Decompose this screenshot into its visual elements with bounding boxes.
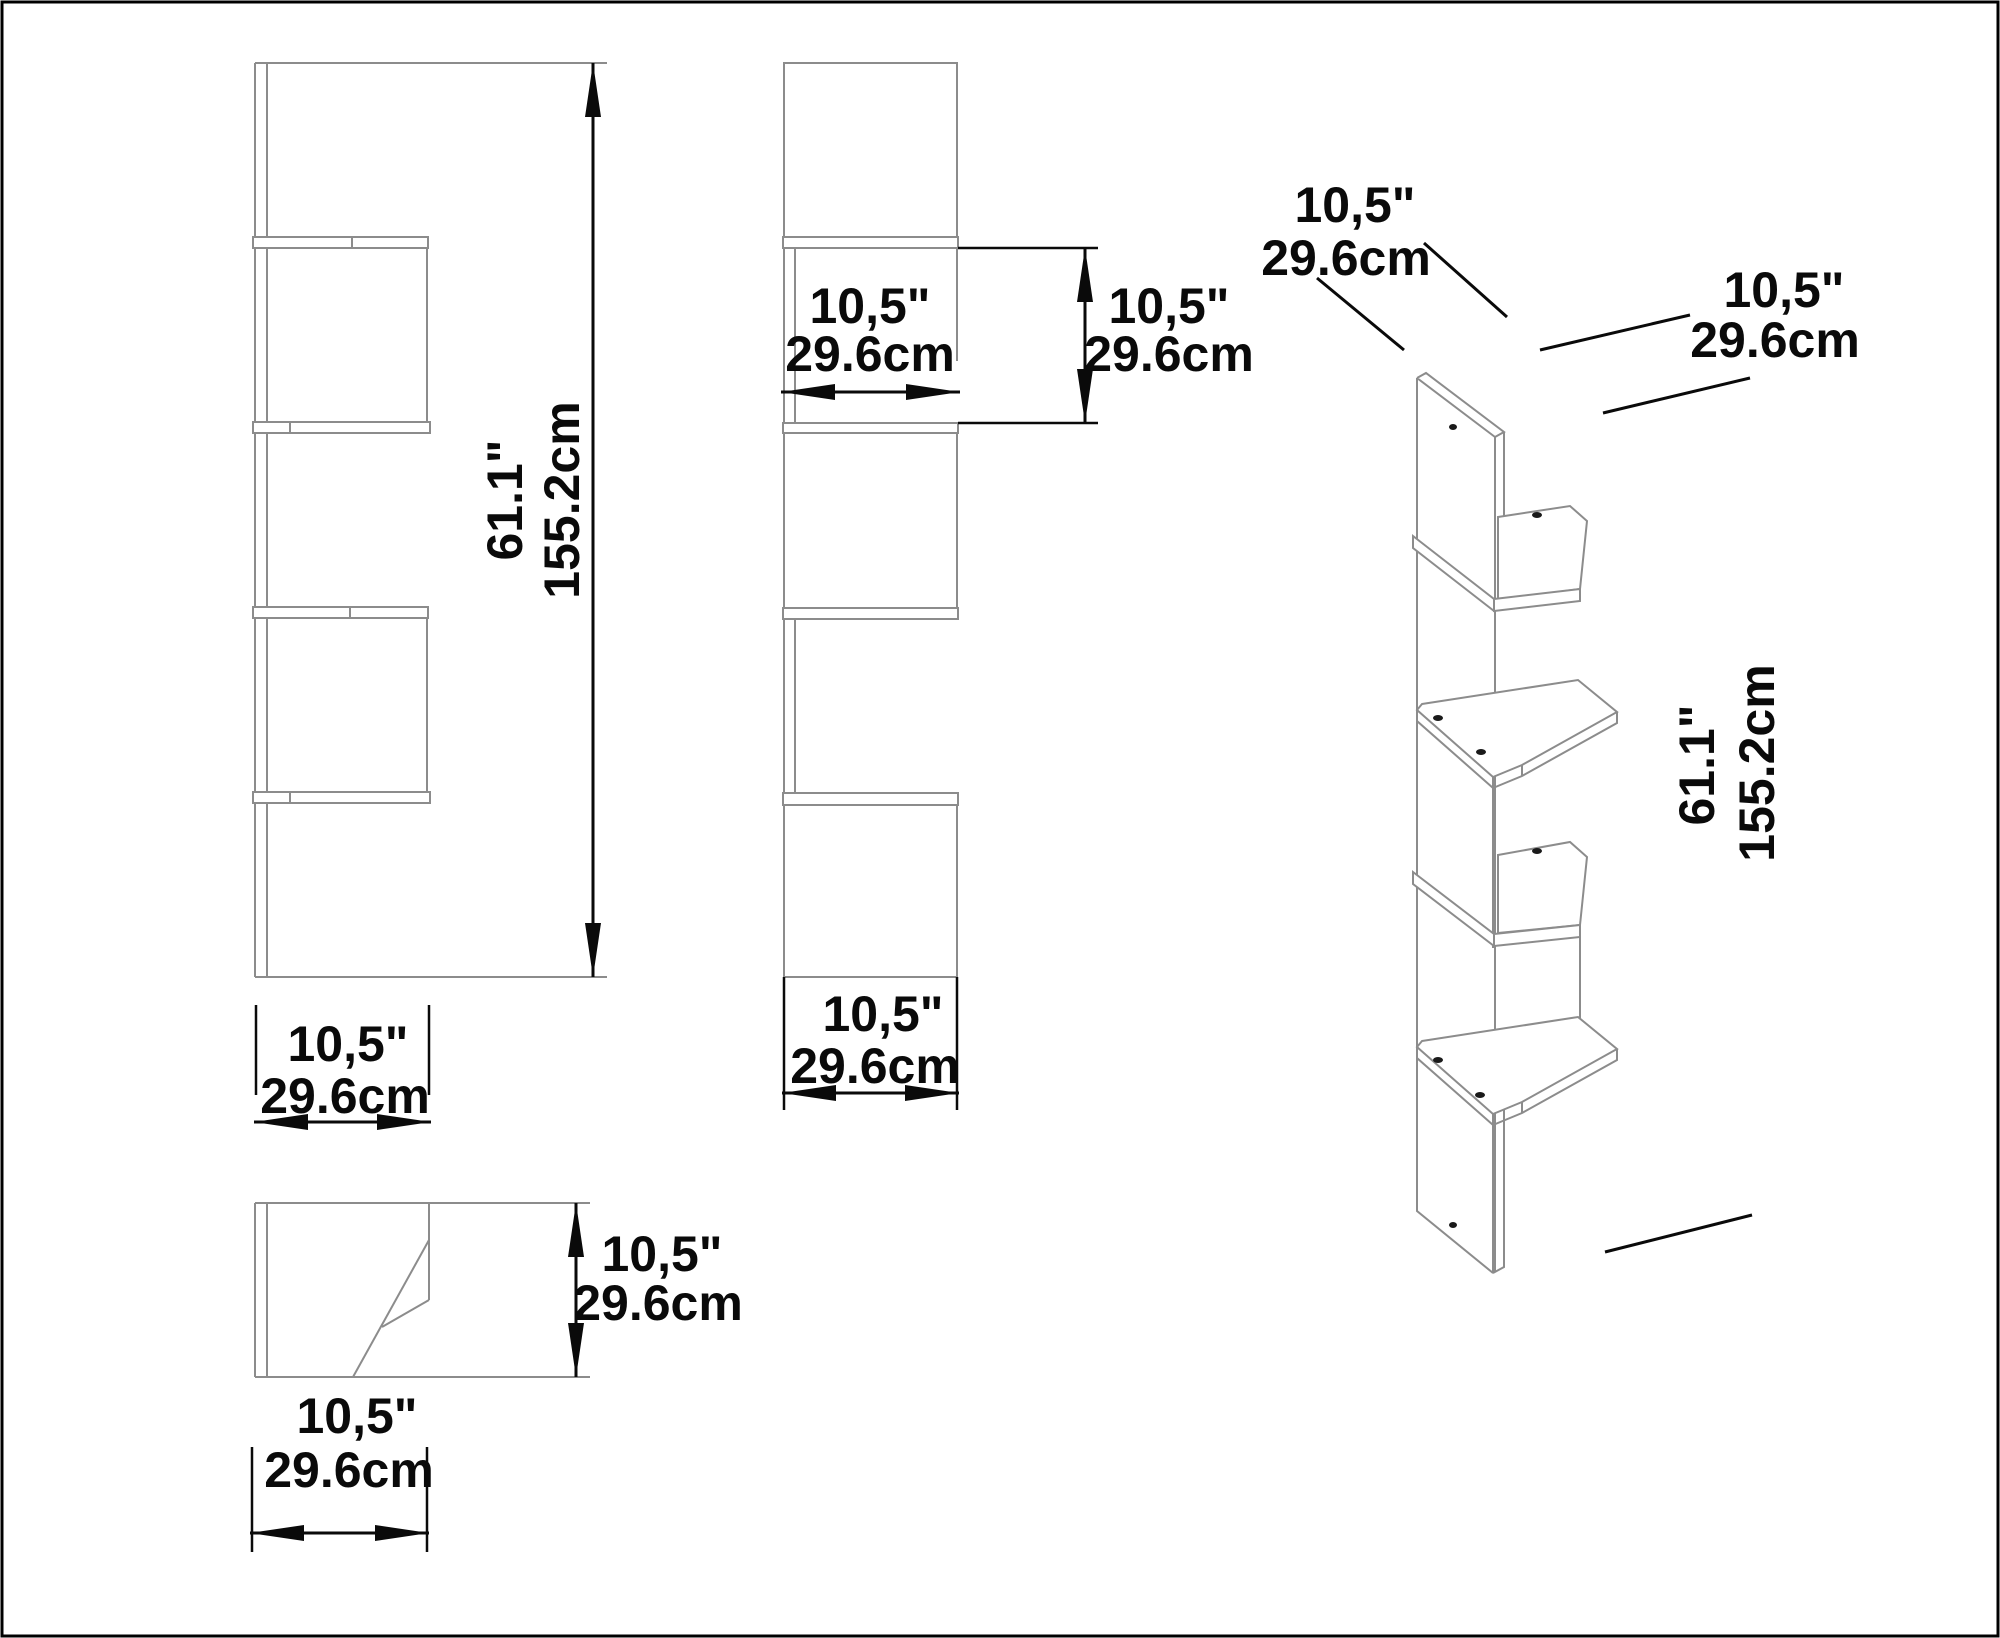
persp-lower-zig-panel xyxy=(1498,842,1587,933)
side-band-2 xyxy=(783,423,958,433)
persp-side-width-in: 10,5" xyxy=(1723,262,1844,318)
side-band-3 xyxy=(783,608,958,619)
screw-hole-icon xyxy=(1532,512,1542,518)
side-box-1 xyxy=(784,63,957,237)
screw-hole-icon xyxy=(1449,424,1457,430)
drawing-sheet: 61.1" 155.2cm 10,5" 29.6cm 10,5" xyxy=(0,0,2000,1638)
persp-back-width-in: 10,5" xyxy=(1294,177,1415,233)
front-height-label-in: 61.1" xyxy=(477,439,533,560)
shelf-dimension-diagram: 61.1" 155.2cm 10,5" 29.6cm 10,5" xyxy=(0,0,2000,1638)
side-width-label-in: 10,5" xyxy=(822,986,943,1042)
top-depth-label-cm: 29.6cm xyxy=(573,1275,743,1331)
top-width-label-in: 10,5" xyxy=(296,1388,417,1444)
screw-hole-icon xyxy=(1433,1057,1443,1063)
front-width-label-cm: 29.6cm xyxy=(260,1068,430,1124)
persp-side-width-cm: 29.6cm xyxy=(1690,312,1860,368)
front-shelf-band-1 xyxy=(253,237,428,248)
screw-hole-icon xyxy=(1475,1092,1485,1098)
side-width-label-cm: 29.6cm xyxy=(790,1038,960,1094)
screw-hole-icon xyxy=(1532,848,1542,854)
persp-height-cm: 155.2cm xyxy=(1729,664,1785,861)
front-shelf-band-4 xyxy=(253,792,430,803)
persp-height-in: 61.1" xyxy=(1669,704,1725,825)
screw-hole-icon xyxy=(1476,749,1486,755)
top-width-label-cm: 29.6cm xyxy=(264,1442,434,1498)
screw-hole-icon xyxy=(1433,715,1443,721)
side-box-2 xyxy=(784,433,957,608)
front-shelf-band-2 xyxy=(253,422,430,433)
side-band-4 xyxy=(783,793,958,805)
top-depth-label-in: 10,5" xyxy=(601,1226,722,1282)
persp-back-width-cm: 29.6cm xyxy=(1261,230,1431,286)
side-box-3 xyxy=(784,805,957,977)
front-height-label-cm: 155.2cm xyxy=(534,401,590,598)
persp-upper-zig-panel xyxy=(1498,506,1587,600)
screw-hole-icon xyxy=(1449,1222,1457,1228)
front-width-label-in: 10,5" xyxy=(287,1016,408,1072)
side-compartment-height-cm: 29.6cm xyxy=(1084,326,1254,382)
side-compartment-width-cm: 29.6cm xyxy=(785,326,955,382)
front-shelf-band-3 xyxy=(253,607,428,618)
side-band-1 xyxy=(783,237,958,248)
